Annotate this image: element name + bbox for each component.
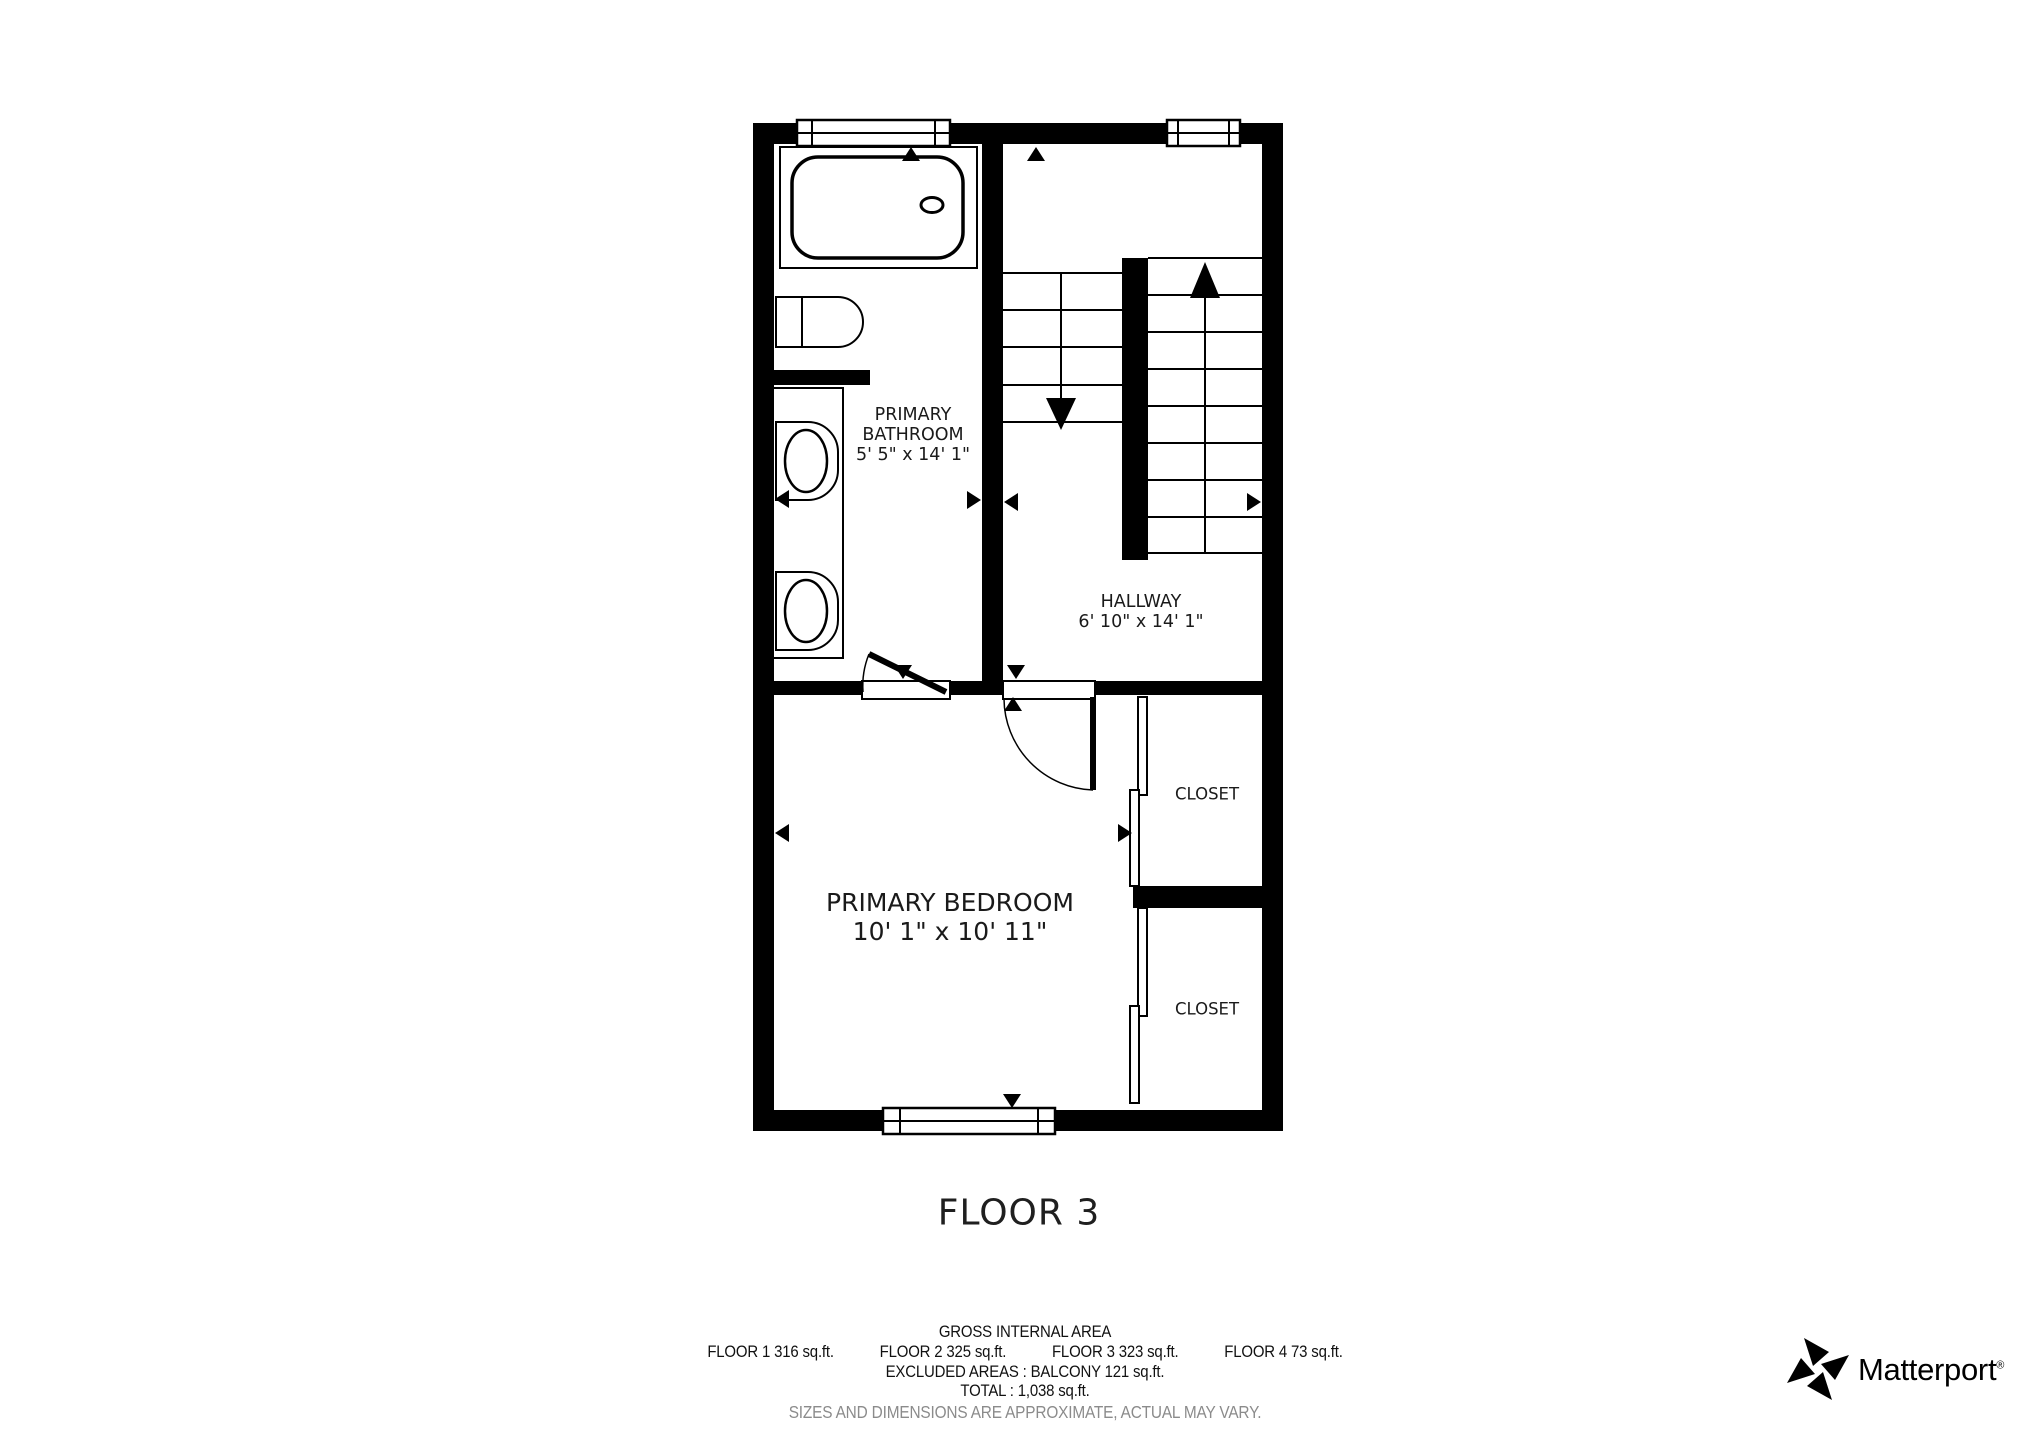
- disclaimer: SIZES AND DIMENSIONS ARE APPROXIMATE, AC…: [789, 1402, 1262, 1423]
- room-name: CLOSET: [1175, 786, 1239, 805]
- floor-area-item: FLOOR 1 316 sq.ft.: [707, 1342, 834, 1362]
- room-label-bedroom: PRIMARY BEDROOM 10' 1" x 10' 11": [826, 888, 1074, 946]
- matterport-wordmark: Matterport®: [1858, 1352, 2004, 1388]
- gross-internal-area-title: GROSS INTERNAL AREA: [939, 1322, 1111, 1342]
- bathtub-drain: [921, 198, 943, 213]
- floor-areas-row: FLOOR 1 316 sq.ft. FLOOR 2 325 sq.ft. FL…: [707, 1342, 1342, 1362]
- room-dimensions: 10' 1" x 10' 11": [826, 917, 1074, 946]
- floor-title: FLOOR 3: [938, 1193, 1101, 1234]
- closet-bottom-sliding-door: [1130, 908, 1147, 1103]
- stairs-up-arrow-icon: [1190, 262, 1220, 298]
- room-dimensions: 6' 10" x 14' 1": [1078, 613, 1203, 633]
- room-label-bathroom: PRIMARY BATHROOM 5' 5" x 14' 1": [856, 406, 970, 466]
- room-label-closet-top: CLOSET: [1175, 786, 1239, 805]
- floor-area-item: FLOOR 2 325 sq.ft.: [880, 1342, 1007, 1362]
- stairs-down-arrow-icon: [1046, 398, 1076, 430]
- room-dimensions: 5' 5" x 14' 1": [856, 446, 970, 466]
- stairs-up-run: [1148, 258, 1262, 553]
- bathroom-door: [862, 654, 950, 699]
- sink-top: [776, 422, 838, 500]
- hallway-left-arrow-icon: [1004, 493, 1018, 511]
- room-name: BATHROOM: [856, 426, 970, 446]
- window-bathroom-top: [797, 120, 950, 146]
- room-label-hallway: HALLWAY 6' 10" x 14' 1": [1078, 593, 1203, 633]
- bathroom-right-arrow-icon: [967, 491, 981, 509]
- matterport-brand: Matterport®: [1786, 1338, 2026, 1400]
- hallway-up-arrow-icon: [1027, 147, 1045, 161]
- room-label-closet-bottom: CLOSET: [1175, 1001, 1239, 1020]
- floorplan-page: PRIMARY BATHROOM 5' 5" x 14' 1" HALLWAY …: [0, 0, 2036, 1440]
- total-area: TOTAL : 1,038 sq.ft.: [960, 1381, 1089, 1401]
- toilet: [776, 297, 863, 347]
- bedroom-down-arrow-icon: [1003, 1094, 1021, 1108]
- floor-area-item: FLOOR 3 323 sq.ft.: [1052, 1342, 1179, 1362]
- hallway-down-arrow-icon: [1007, 665, 1025, 679]
- window-hallway-top: [1167, 120, 1240, 146]
- room-name: PRIMARY BEDROOM: [826, 888, 1074, 917]
- bathtub: [780, 147, 977, 268]
- excluded-areas: EXCLUDED AREAS : BALCONY 121 sq.ft.: [886, 1362, 1165, 1382]
- door-swing-arc: [1004, 699, 1093, 790]
- window-bedroom-bottom: [883, 1108, 1055, 1134]
- hallway-right-arrow-icon: [1247, 493, 1261, 511]
- room-name: HALLWAY: [1078, 593, 1203, 613]
- stairs-down-run: [1003, 273, 1122, 430]
- floor-area-item: FLOOR 4 73 sq.ft.: [1224, 1342, 1342, 1362]
- room-name: PRIMARY: [856, 406, 970, 426]
- bedroom-door: [1003, 681, 1095, 790]
- registered-mark: ®: [1996, 1360, 2004, 1372]
- sink-bottom: [776, 572, 838, 650]
- closet-top-sliding-door: [1130, 697, 1147, 886]
- room-name: CLOSET: [1175, 1001, 1239, 1020]
- bedroom-left-arrow-icon: [775, 824, 789, 842]
